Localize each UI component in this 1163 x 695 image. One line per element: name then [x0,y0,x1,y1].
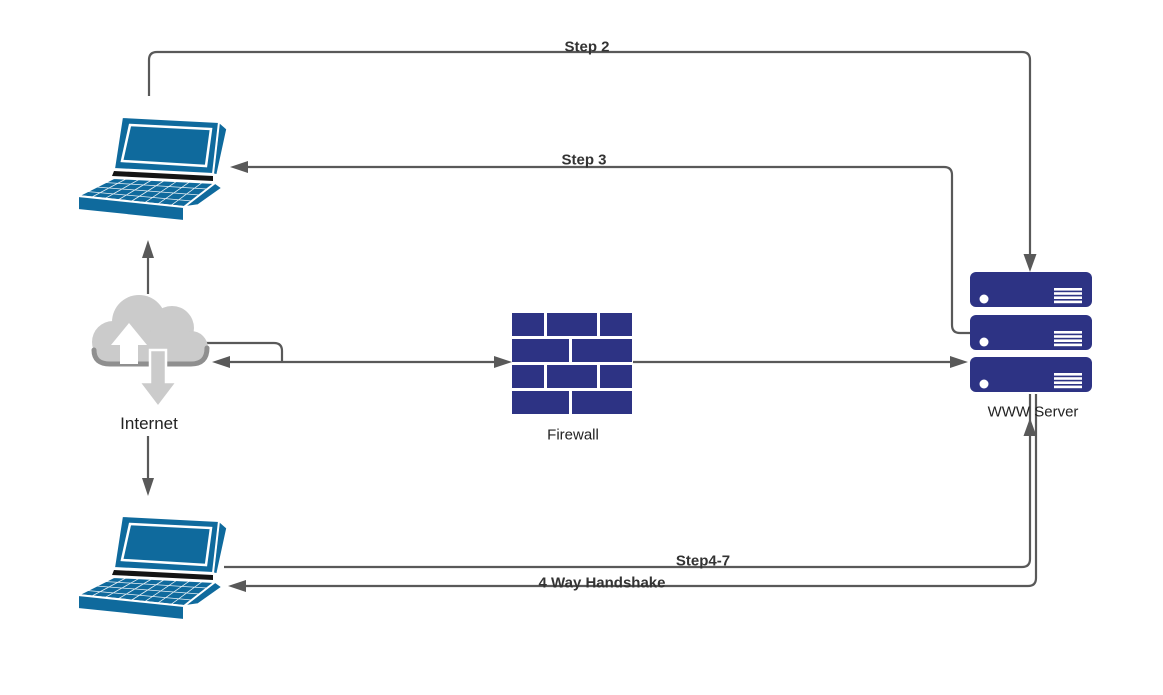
firewall-icon [512,313,632,414]
node-label-www-server: WWW Server [988,404,1079,421]
diagram-canvas: Step 2 Step 3 Step4-7 4 Way Handshake In… [0,0,1163,695]
connector-label-step2: Step 2 [564,39,609,56]
connector-label-step3: Step 3 [561,152,606,169]
arrowhead-step2-down [1024,254,1037,272]
server-stack-icon [970,272,1092,393]
connector-cloud-jog [205,343,282,361]
internet-cloud-icon [85,290,215,415]
arrowhead-server-right [950,356,968,368]
connector-step3 [248,167,970,333]
laptop-bottom-icon [72,494,238,630]
connector-label-step4-7: Step4-7 [676,553,730,570]
node-label-firewall: Firewall [547,427,599,444]
node-label-internet: Internet [120,414,178,434]
arrowhead-laptop-top-up [142,240,154,258]
connector-label-handshake: 4 Way Handshake [539,575,666,592]
laptop-top-icon [72,95,238,231]
arrowhead-step4-7-up [1024,418,1037,436]
connector-step4-7 [224,394,1030,567]
connector-handshake [246,394,1036,586]
arrowhead-firewall-right [494,356,512,368]
